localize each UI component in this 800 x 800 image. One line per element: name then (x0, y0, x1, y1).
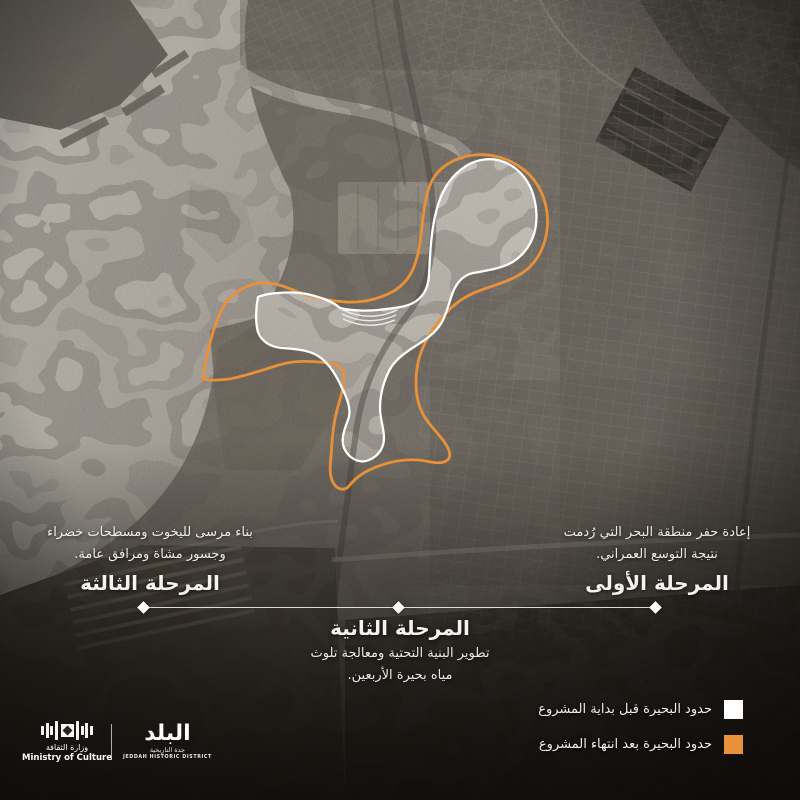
legend-item-before: حدود البحيرة قبل بداية المشروع (538, 700, 743, 719)
phase-1-title: المرحلة الأولى (542, 570, 772, 596)
ministry-name-english: Ministry of Culture (22, 753, 112, 763)
footer-logos: وزارة الثقافة Ministry of Culture البلد … (34, 720, 212, 763)
phase-3-desc-line-1: بناء مرسى لليخوت ومسطحات خضراء (35, 522, 265, 544)
logo-divider (111, 724, 112, 760)
phase-3-annotation: بناء مرسى لليخوت ومسطحات خضراء وجسور مشا… (35, 522, 265, 596)
district-sub-arabic: جدة التاريخية (150, 746, 185, 754)
jeddah-historic-district-logo: البلد جدة التاريخية JEDDAH HISTORIC DIST… (123, 722, 212, 761)
phase-2-desc-line-1: تطوير البنية التحتية ومعالجة تلوث (285, 643, 515, 665)
legend-item-after: حدود البحيرة بعد انتهاء المشروع (539, 735, 743, 754)
phase-3-title: المرحلة الثالثة (35, 570, 265, 596)
legend-swatch-orange (724, 735, 743, 754)
phase-3-desc-line-2: وجسور مشاة ومرافق عامة. (35, 544, 265, 566)
ministry-name-arabic: وزارة الثقافة (46, 743, 88, 753)
phase-1-desc-line-1: إعادة حفر منطقة البحر التي رُدمت (542, 522, 772, 544)
legend: حدود البحيرة قبل بداية المشروع حدود البح… (538, 700, 743, 754)
district-sub-english: JEDDAH HISTORIC DISTRICT (123, 754, 212, 761)
phase-1-desc-line-2: نتيجة التوسع العمراني. (542, 544, 772, 566)
ministry-of-culture-logo: وزارة الثقافة Ministry of Culture (34, 720, 100, 763)
phase-2-annotation: المرحلة الثانية تطوير البنية التحتية ومع… (285, 615, 515, 687)
phase-2-desc-line-2: مياه بحيرة الأربعين. (285, 665, 515, 687)
albalad-wordmark: البلد (144, 722, 190, 746)
phase-1-annotation: إعادة حفر منطقة البحر التي رُدمت نتيجة ا… (542, 522, 772, 596)
legend-label-before: حدود البحيرة قبل بداية المشروع (538, 702, 712, 717)
ministry-emblem-icon (41, 720, 93, 740)
project-phases-poster: إعادة حفر منطقة البحر التي رُدمت نتيجة ا… (0, 0, 800, 800)
phase-2-title: المرحلة الثانية (285, 615, 515, 641)
legend-swatch-white (724, 700, 743, 719)
legend-label-after: حدود البحيرة بعد انتهاء المشروع (539, 737, 712, 752)
